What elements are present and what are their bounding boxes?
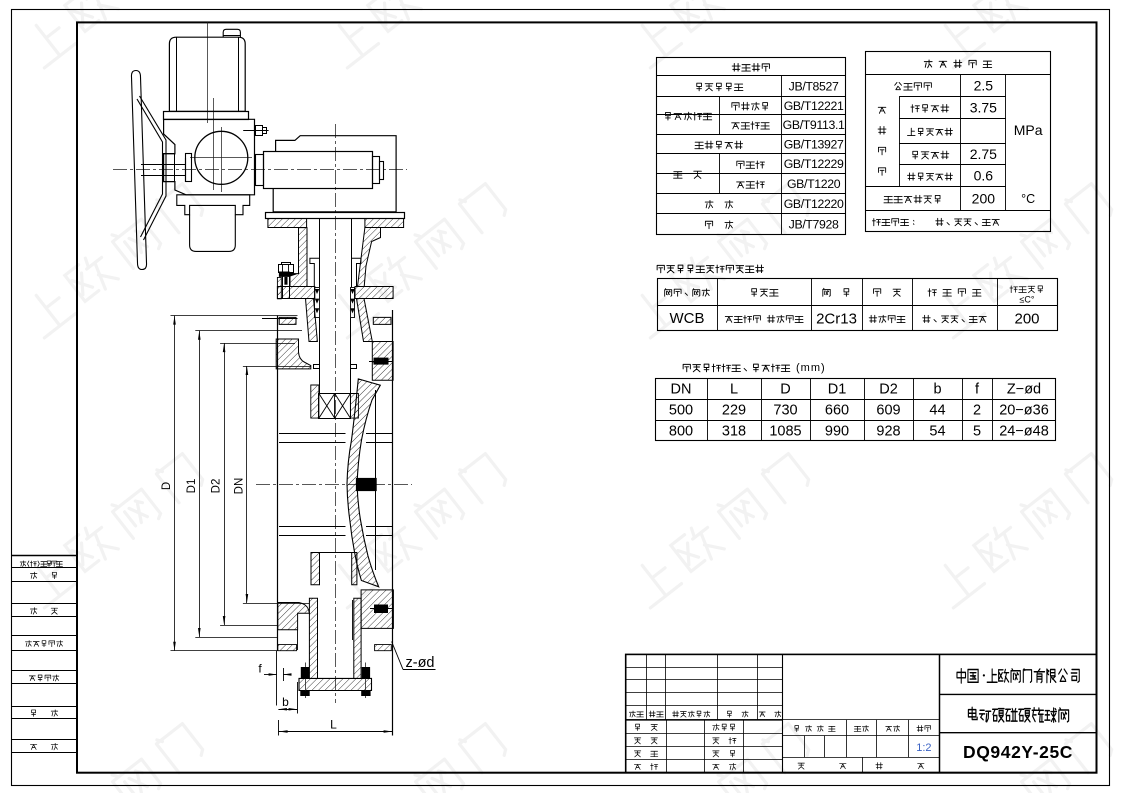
svg-text:≤C°: ≤C° (1019, 295, 1034, 305)
svg-text:990: 990 (825, 424, 849, 440)
svg-text:800: 800 (669, 424, 693, 440)
svg-text:D: D (161, 482, 173, 490)
svg-text:D: D (780, 382, 790, 398)
svg-text:DN: DN (671, 382, 692, 398)
svg-text:f: f (975, 382, 980, 398)
svg-text:730: 730 (773, 403, 797, 419)
svg-text:2.5: 2.5 (974, 77, 994, 93)
svg-text:GB/T13927: GB/T13927 (784, 138, 844, 152)
svg-text:D1: D1 (186, 479, 198, 494)
svg-text:Z−ød: Z−ød (1007, 382, 1041, 398)
svg-text:GB/T12229: GB/T12229 (784, 157, 844, 171)
svg-text:GB/T9113.1: GB/T9113.1 (783, 118, 845, 132)
svg-text:44: 44 (929, 403, 945, 419)
svg-text:1085: 1085 (769, 424, 801, 440)
svg-text:609: 609 (876, 403, 900, 419)
svg-text:3.75: 3.75 (970, 100, 997, 116)
svg-text:GB/T1220: GB/T1220 (787, 177, 841, 191)
svg-text:20−ø36: 20−ø36 (999, 403, 1049, 419)
svg-text:MPa: MPa (1014, 122, 1043, 138)
svg-text:b: b (933, 382, 941, 398)
svg-text:DQ942Y-25C: DQ942Y-25C (963, 742, 1073, 762)
svg-text:1:2: 1:2 (916, 742, 931, 754)
svg-text:GB/T12221: GB/T12221 (784, 99, 844, 113)
svg-text:GB/T12220: GB/T12220 (784, 197, 844, 211)
svg-text:(mm): (mm) (796, 362, 826, 374)
svg-text:WCB: WCB (670, 310, 705, 327)
svg-text:DN: DN (233, 478, 245, 495)
svg-text:JB/T7928: JB/T7928 (789, 217, 839, 231)
svg-text:2: 2 (973, 403, 981, 419)
svg-text:JB/T8527: JB/T8527 (789, 79, 839, 93)
svg-text:b: b (282, 695, 289, 709)
svg-text:229: 229 (722, 403, 746, 419)
svg-text:2Cr13: 2Cr13 (816, 311, 857, 328)
svg-text:0.6: 0.6 (974, 168, 994, 184)
svg-text:928: 928 (876, 424, 900, 440)
svg-text:200: 200 (1014, 311, 1039, 328)
svg-text:D1: D1 (828, 382, 847, 398)
svg-text:D2: D2 (879, 382, 898, 398)
svg-text:200: 200 (972, 190, 996, 206)
svg-text:z-ød: z-ød (406, 655, 435, 671)
svg-text:660: 660 (825, 403, 849, 419)
svg-text:L: L (730, 382, 738, 398)
svg-text:500: 500 (669, 403, 693, 419)
svg-text:5: 5 (973, 424, 981, 440)
svg-text:°C: °C (1021, 192, 1035, 206)
svg-text:2.75: 2.75 (970, 146, 997, 162)
svg-text:54: 54 (929, 424, 945, 440)
svg-text:D2: D2 (211, 479, 223, 494)
svg-text:318: 318 (722, 424, 746, 440)
svg-text:L: L (330, 718, 337, 732)
svg-text:f: f (258, 662, 262, 676)
svg-text:24−ø48: 24−ø48 (999, 424, 1049, 440)
